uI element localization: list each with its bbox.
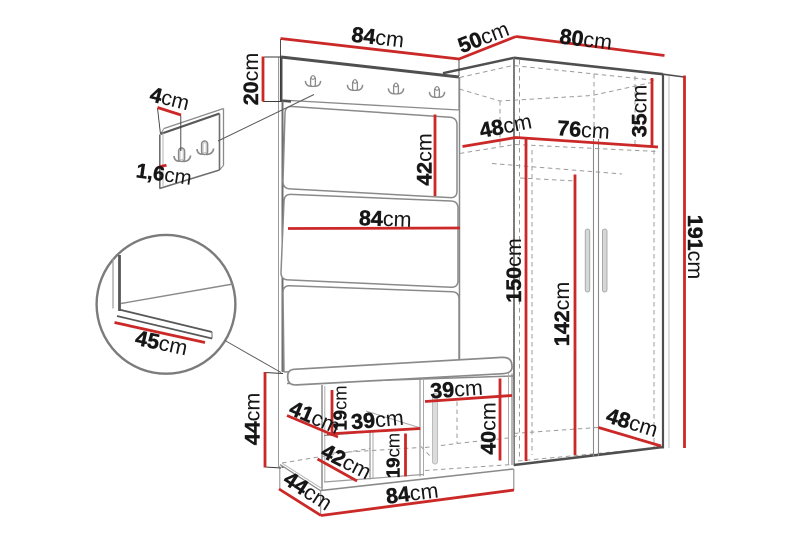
svg-text:39cm: 39cm (350, 406, 404, 434)
svg-text:44cm: 44cm (241, 393, 265, 446)
svg-text:84cm: 84cm (359, 206, 412, 232)
svg-text:19cm: 19cm (330, 385, 351, 430)
svg-text:42cm: 42cm (413, 133, 437, 186)
svg-text:150cm: 150cm (502, 238, 526, 303)
svg-text:40cm: 40cm (477, 402, 501, 455)
svg-text:19cm: 19cm (383, 433, 404, 478)
svg-text:35cm: 35cm (628, 85, 652, 138)
svg-text:20cm: 20cm (239, 53, 263, 106)
svg-text:76cm: 76cm (556, 116, 610, 144)
svg-text:39cm: 39cm (429, 376, 483, 404)
svg-text:142cm: 142cm (550, 282, 574, 347)
svg-text:191cm: 191cm (683, 215, 707, 280)
